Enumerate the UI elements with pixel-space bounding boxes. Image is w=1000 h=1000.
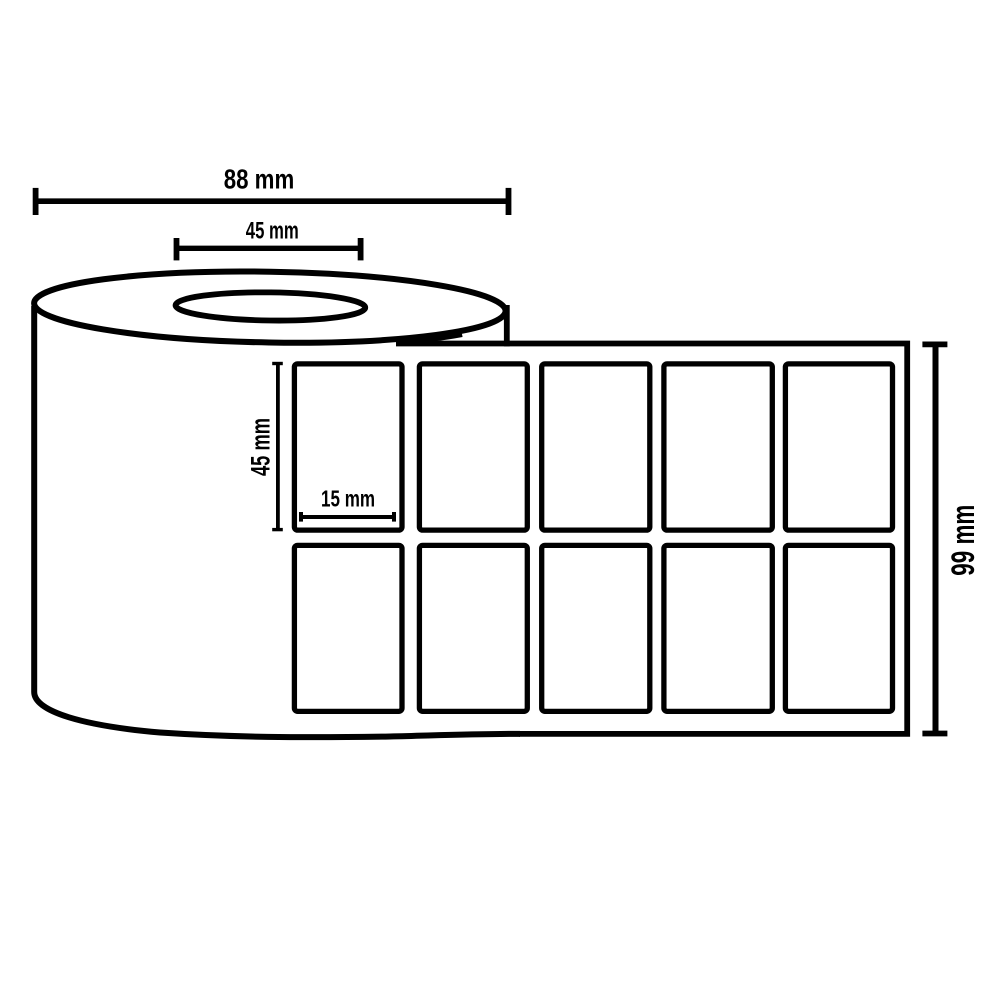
svg-text:88 mm: 88 mm [224, 164, 295, 195]
svg-text:45 mm: 45 mm [246, 217, 299, 244]
svg-text:99 mm: 99 mm [945, 505, 981, 576]
svg-text:15 mm: 15 mm [321, 485, 375, 511]
svg-text:45 mm: 45 mm [246, 418, 276, 476]
